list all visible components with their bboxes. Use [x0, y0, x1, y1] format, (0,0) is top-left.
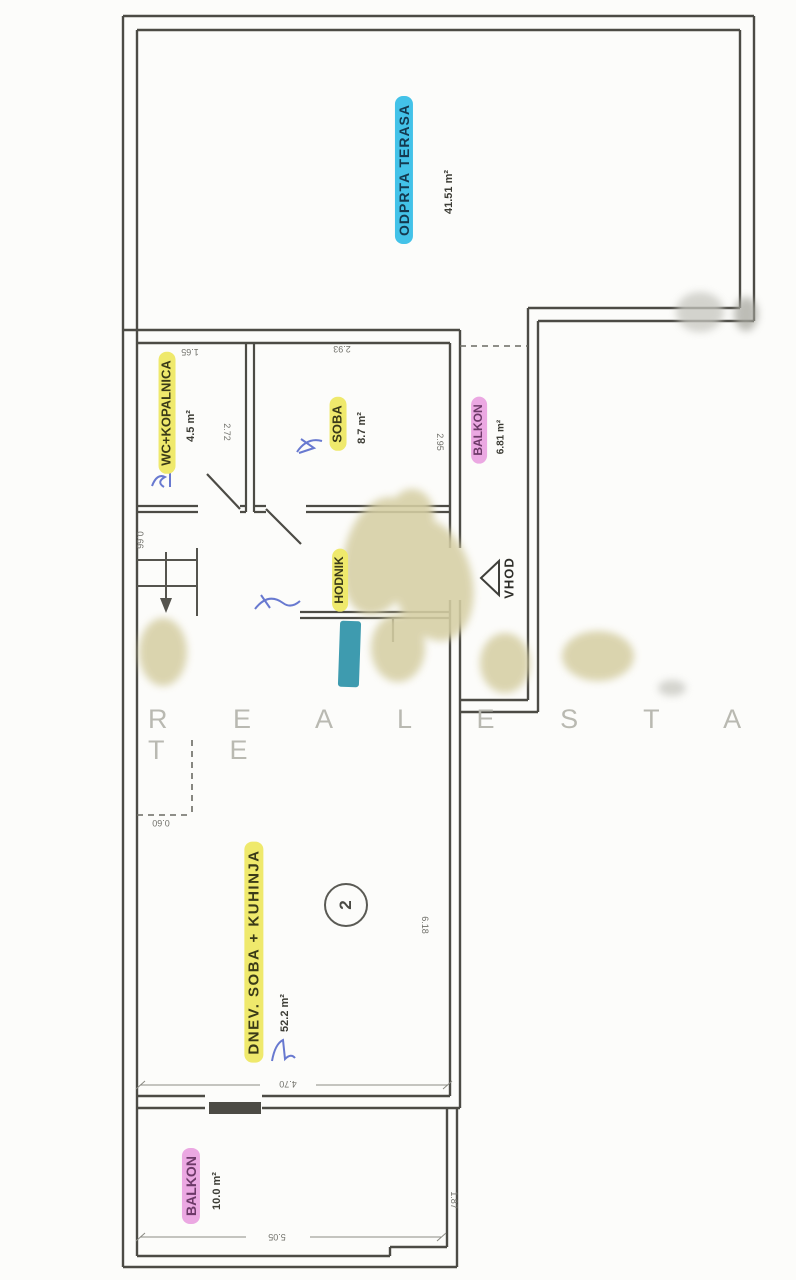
watermark-text: R E A L E S T A T E: [148, 704, 796, 766]
dimension-soba-width: 2.93: [333, 344, 351, 354]
entrance-arrow-icon: [481, 561, 499, 595]
pen-mark: [255, 595, 300, 609]
room-label-balkon-spodnji: BALKON: [182, 1148, 200, 1224]
door-highlight: [338, 621, 361, 688]
exterior-walls: [123, 16, 754, 1267]
room-area-balkon-vhod: 6.81 m²: [496, 420, 507, 454]
room-label-hodnik: HODNIK: [332, 548, 348, 611]
soba-door-swing: [266, 509, 301, 544]
room-label-dnevna: DNEV. SOBA + KUHINJA: [244, 841, 263, 1062]
dimension-wc-depth: 2.72: [222, 423, 232, 441]
room-area-balkon-spodnji: 10.0 m²: [211, 1172, 223, 1210]
stairs: [137, 548, 197, 616]
dimension-stairs-width: 0.66: [135, 531, 145, 549]
room-area-terasa: 41.51 m²: [443, 170, 455, 214]
dimension-niche-width: 0.60: [152, 818, 170, 828]
pen-mark: [272, 1040, 295, 1061]
dimension-wc-width: 1.65: [181, 347, 199, 357]
dimension-balkon-width: 5.05: [268, 1232, 286, 1242]
unit-number-badge: 2: [324, 883, 368, 927]
dimension-balkon-depth: 1.87: [449, 1191, 459, 1209]
dimension-dnevna-width: 4.70: [279, 1079, 297, 1089]
dimension-dnevna-depth: 6.18: [420, 916, 430, 934]
floorplan-scan: R E A L E S T A T E ODPRTA TERASA 41.51 …: [0, 0, 796, 1280]
room-label-soba: SOBA: [330, 397, 347, 451]
room-area-dnevna: 52.2 m²: [279, 994, 291, 1032]
room-area-soba: 8.7 m²: [356, 412, 368, 444]
room-label-balkon-vhod: BALKON: [471, 396, 487, 463]
wc-door-swing: [207, 474, 240, 509]
stairs-direction-arrow-icon: [160, 598, 172, 613]
scan-smudges: [658, 292, 758, 696]
room-area-wc: 4.5 m²: [185, 410, 197, 442]
dimension-soba-depth: 2.95: [435, 433, 445, 451]
balcony-door-threshold: [209, 1102, 261, 1114]
watermark-logo-blobs: [139, 489, 634, 693]
entrance-label: VHOD: [502, 557, 517, 599]
pen-mark: [297, 439, 322, 453]
room-label-wc: WC+KOPALNICA: [159, 352, 176, 474]
room-label-terasa: ODPRTA TERASA: [395, 96, 413, 244]
unit-number: 2: [336, 900, 356, 909]
